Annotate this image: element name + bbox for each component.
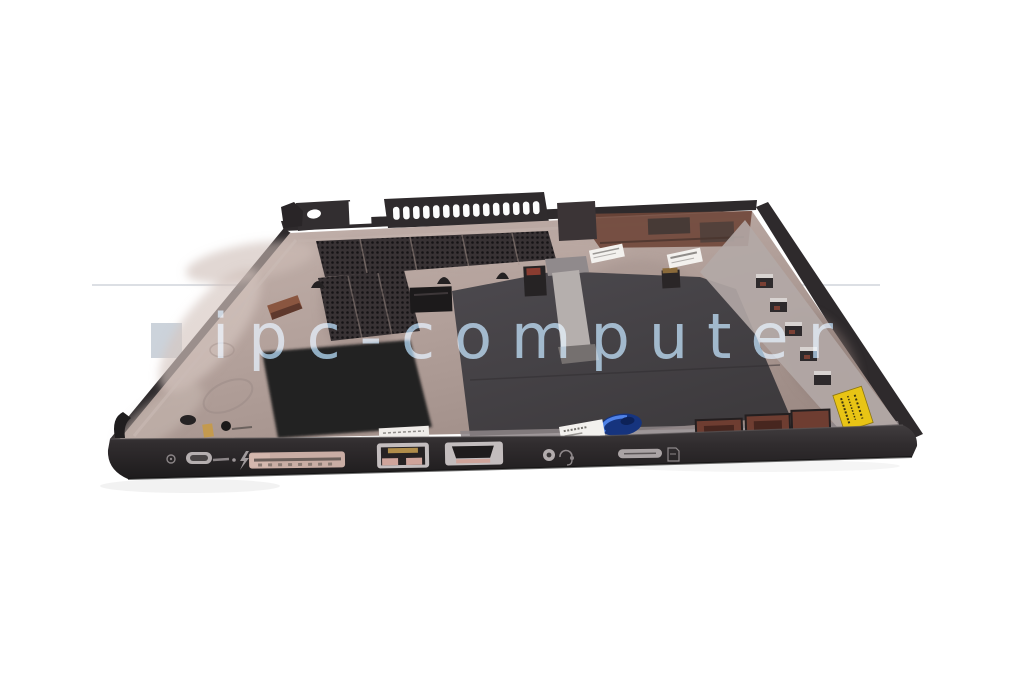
laptop-bottom-case-photo [0,0,1024,680]
gold-contact [202,423,214,437]
connector-block [410,286,453,312]
hdmi-port [445,441,503,465]
dock-connector [249,451,345,468]
product-photo: ipc-computer [0,0,1024,680]
back-edge-notch [349,201,372,225]
screw-post [221,421,231,431]
sim-slot [618,449,662,459]
gold-top-module [662,268,681,289]
mesh-grille-left [318,270,420,341]
small-module [523,265,547,296]
screw-boss [180,415,196,425]
ethernet-port [377,443,429,469]
speaker-foam-pad [262,340,432,438]
indicator-dot [232,458,236,462]
